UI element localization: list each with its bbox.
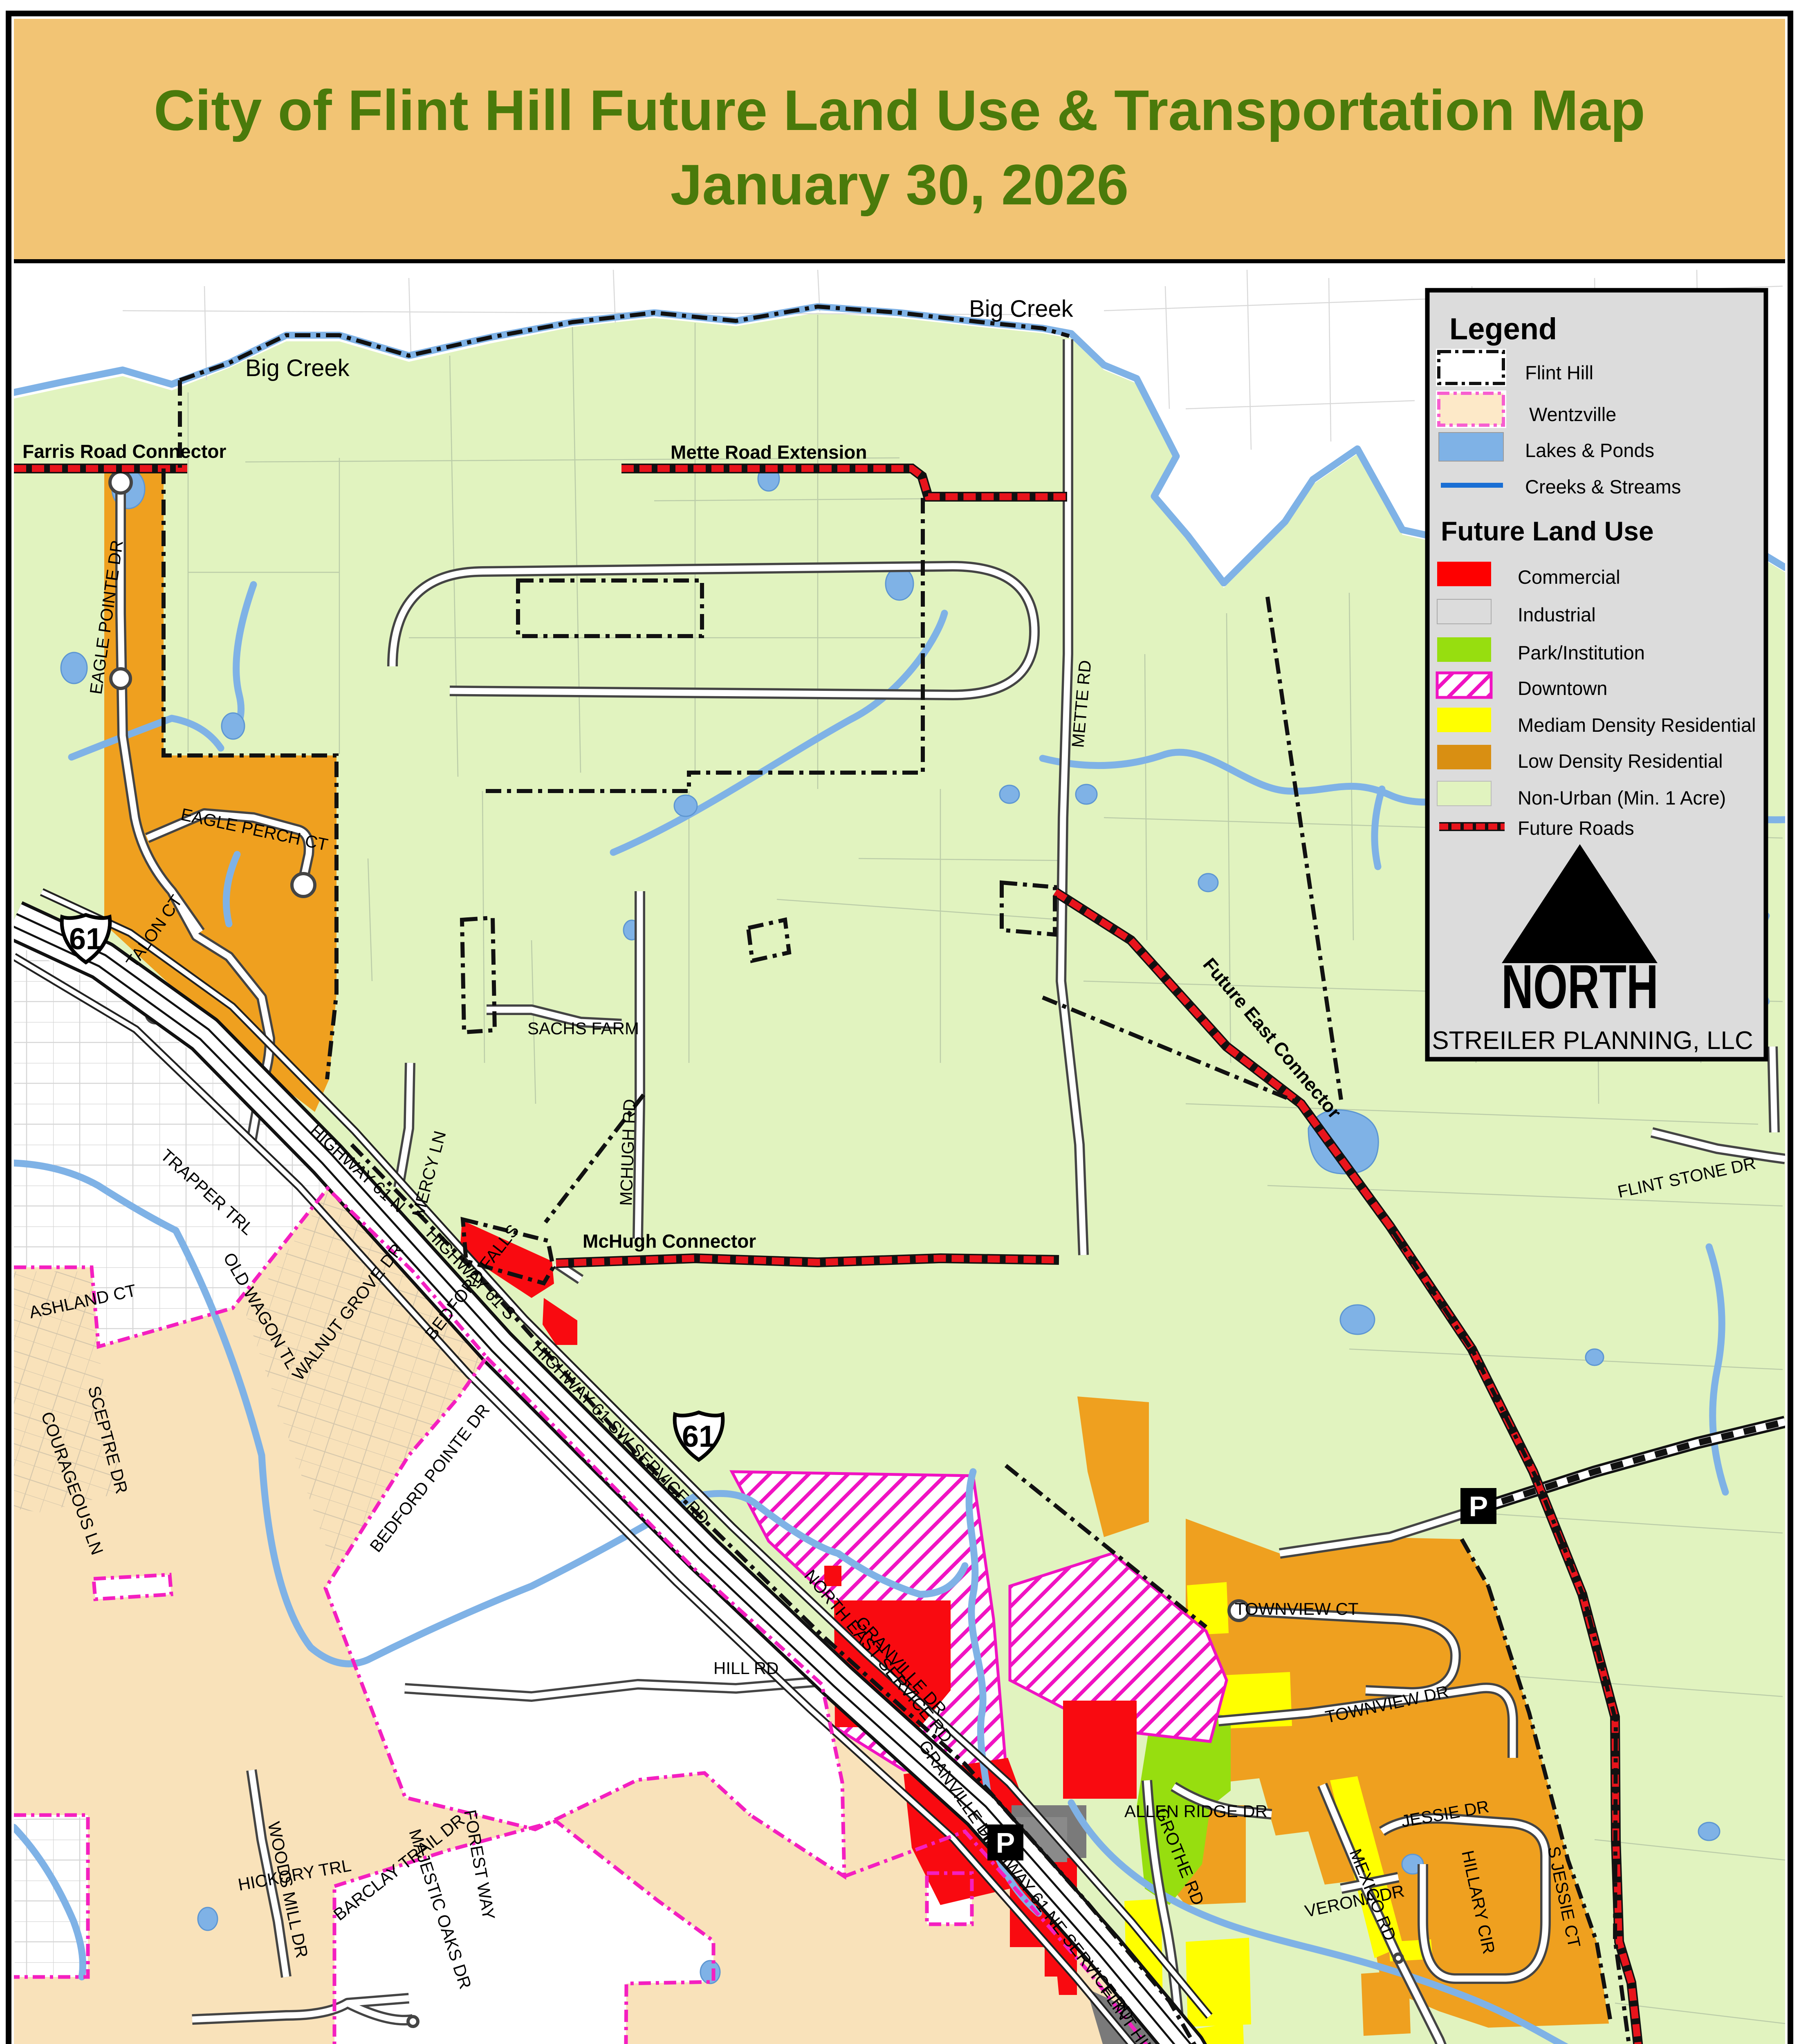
svg-text:Future Land Use: Future Land Use [1441,516,1654,546]
svg-text:Future Roads: Future Roads [1518,817,1634,839]
svg-text:January 30, 2026: January 30, 2026 [671,152,1129,217]
svg-text:Farris Road Connector: Farris Road Connector [22,441,227,462]
svg-text:Big Creek: Big Creek [245,355,350,381]
svg-text:Lakes & Ponds: Lakes & Ponds [1525,439,1654,461]
svg-text:Park/Institution: Park/Institution [1518,642,1645,663]
svg-text:STREILER PLANNING, LLC: STREILER PLANNING, LLC [1432,1026,1753,1055]
svg-text:Flint Hill: Flint Hill [1525,362,1593,383]
svg-text:HILL RD: HILL RD [713,1659,779,1678]
svg-text:Mediam Density Residential: Mediam Density Residential [1518,714,1756,736]
svg-text:Non-Urban (Min. 1 Acre): Non-Urban (Min. 1 Acre) [1518,787,1726,809]
svg-text:Legend: Legend [1449,312,1557,346]
svg-text:TOWNVIEW CT: TOWNVIEW CT [1235,1599,1359,1618]
svg-text:City of Flint Hill Future Land: City of Flint Hill Future Land Use & Tra… [154,78,1645,142]
svg-text:McHugh Connector: McHugh Connector [583,1230,756,1252]
svg-text:Commercial: Commercial [1518,566,1620,588]
svg-text:Creeks & Streams: Creeks & Streams [1525,476,1681,498]
svg-text:Industrial: Industrial [1518,604,1596,625]
svg-text:Low Density Residential: Low Density Residential [1518,750,1723,772]
svg-text:ALLEN RIDGE DR: ALLEN RIDGE DR [1124,1802,1267,1821]
svg-text:Wentzville: Wentzville [1529,403,1616,425]
svg-text:Big Creek: Big Creek [969,296,1074,322]
svg-text:NORTH: NORTH [1501,952,1658,1022]
svg-text:Mette Road Extension: Mette Road Extension [671,442,867,463]
svg-text:Downtown: Downtown [1518,677,1607,699]
svg-text:MCHUGH RD: MCHUGH RD [616,1099,639,1206]
svg-text:SACHS FARM: SACHS FARM [527,1019,639,1038]
